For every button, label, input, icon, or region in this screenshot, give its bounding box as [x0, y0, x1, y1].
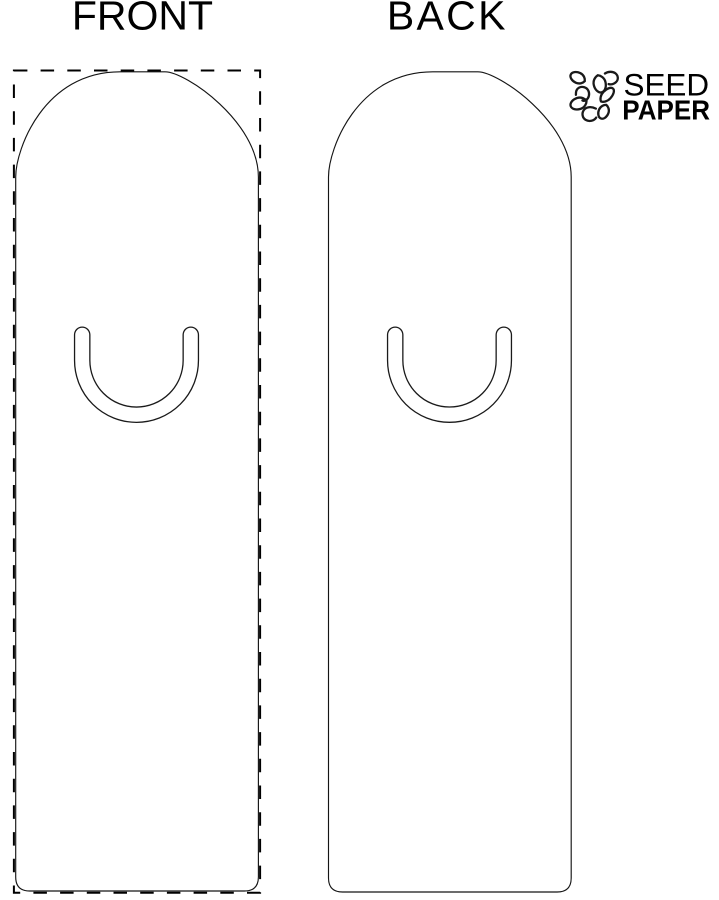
svg-text:BACK: BACK	[387, 0, 508, 39]
svg-text:PAPER: PAPER	[622, 94, 710, 125]
svg-text:FRONT: FRONT	[72, 0, 213, 39]
